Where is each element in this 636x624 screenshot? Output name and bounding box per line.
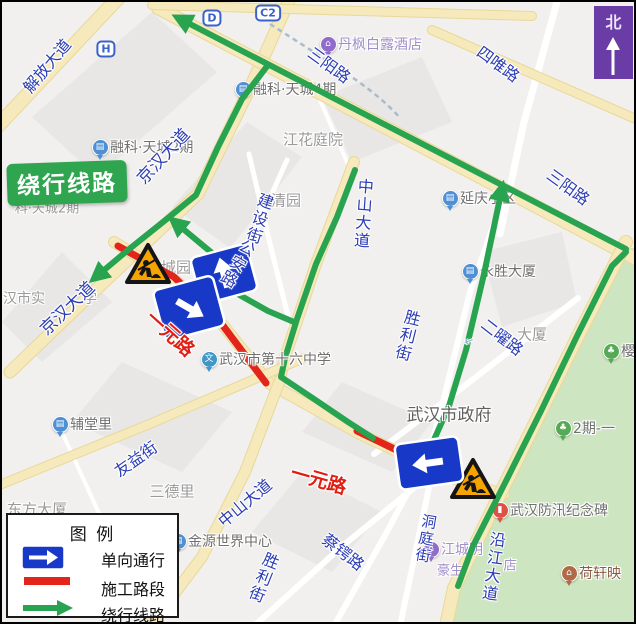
road-label: 一元路 xyxy=(288,458,350,500)
legend-construction-label: 施工路段 xyxy=(101,576,165,600)
compass-north-label: 北 xyxy=(594,9,633,33)
metro-exit-badge: H xyxy=(96,41,115,58)
road-label: 蔡锷路 xyxy=(318,527,371,575)
road-label: 一元路 xyxy=(141,304,201,362)
metro-exit-badge: D xyxy=(202,10,221,27)
legend-oneway-icon xyxy=(21,544,77,570)
school-poi-icon: 文 xyxy=(201,351,218,368)
road-label: 三阳路 xyxy=(543,162,596,210)
compass-arrow-icon xyxy=(594,33,633,79)
road-label: 中山大道 xyxy=(354,178,375,251)
legend-detour-label: 绕行线路 xyxy=(101,602,165,624)
compass: 北 xyxy=(594,6,633,79)
road-label: 胜利街 xyxy=(394,308,423,364)
poi-label: 武汉市第十六中学 xyxy=(219,349,331,369)
road-label: 公安路 xyxy=(218,237,259,292)
area-label: 武汉市政府 xyxy=(407,401,492,426)
road-label: 京汉大道 xyxy=(33,274,99,339)
metro-exit-badge: C2 xyxy=(255,5,281,22)
legend-construction-icon xyxy=(21,573,77,599)
road-label: 解放大道 xyxy=(16,33,76,97)
road-label: 二曜路 xyxy=(477,312,530,360)
legend-detour-icon xyxy=(21,599,77,624)
road-label: 京汉大道 xyxy=(130,122,195,189)
legend: 图 例 单向通行 施工路段 xyxy=(6,513,179,618)
detour-route-badge: 绕行线路 xyxy=(6,160,127,206)
road-label: 四唯路 xyxy=(473,39,526,87)
road-label: 沿江大道 xyxy=(481,530,507,603)
detour-badge-text: 绕行线路 xyxy=(17,170,118,199)
legend-oneway-label: 单向通行 xyxy=(101,547,165,571)
map-frame: 江花庭院清园城园三德里汉市实学科·天城2期大厦东方大厦豪生店▤融科·天城4期▤融… xyxy=(0,0,636,624)
road-label: ← xyxy=(462,333,475,348)
road-label: 中山大道 xyxy=(212,472,276,532)
road-label: 洞庭街 xyxy=(414,513,438,565)
road-label: 三阳路 xyxy=(304,40,357,88)
road-label: 友益街 xyxy=(108,434,161,481)
road-label: 胜利街 xyxy=(247,550,282,606)
map-canvas[interactable]: 江花庭院清园城园三德里汉市实学科·天城2期大厦东方大厦豪生店▤融科·天城4期▤融… xyxy=(2,2,634,622)
legend-title: 图 例 xyxy=(8,520,177,545)
